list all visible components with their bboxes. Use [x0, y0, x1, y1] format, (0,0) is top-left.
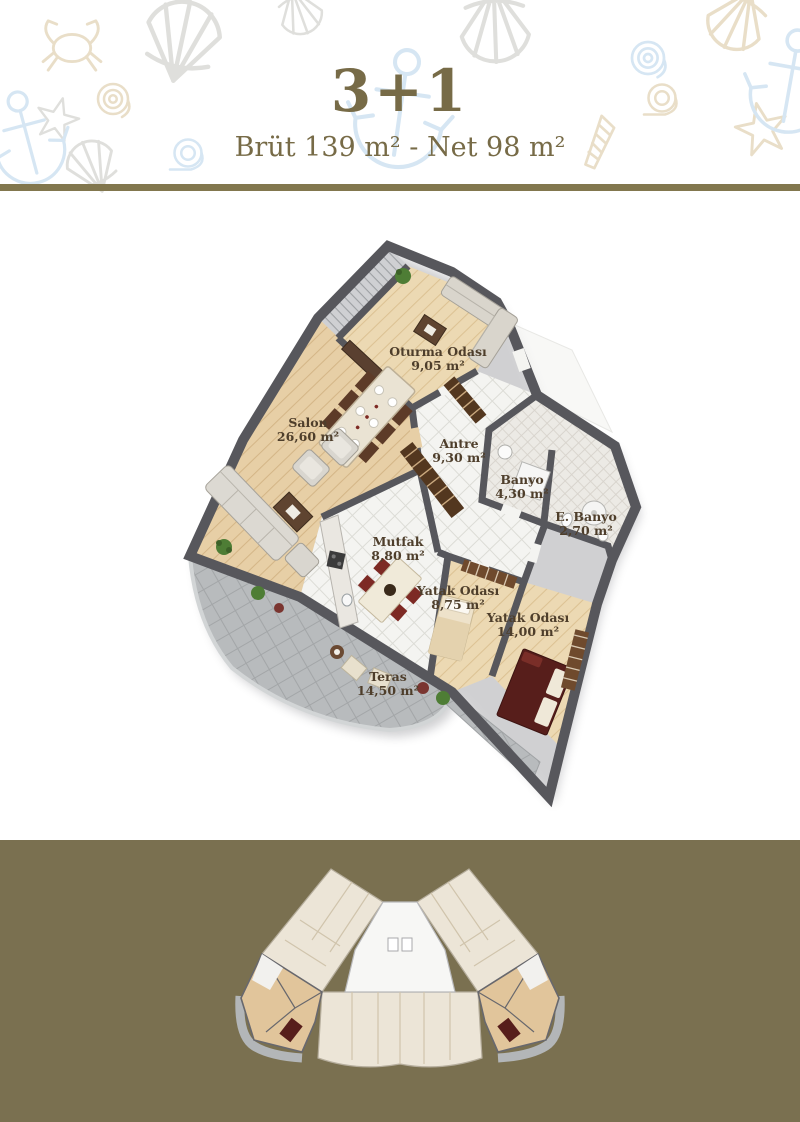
room-area-salon: 26,60 m²	[277, 429, 339, 444]
unit-floor-plan: Oturma Odası 9,05 m² Salon 26,60 m² Antr…	[190, 246, 641, 804]
seashell-decor	[0, 0, 800, 200]
room-label-banyo: Banyo	[500, 472, 543, 487]
room-label-teras: Teras	[369, 669, 407, 684]
room-label-yatak2: Yatak Odası	[486, 610, 570, 625]
brochure-page: Oturma Odası 9,05 m² Salon 26,60 m² Antr…	[0, 0, 800, 1122]
room-label-ebanyo: E. Banyo	[555, 509, 617, 524]
sink	[342, 594, 352, 606]
room-area-yatak1: 8,75 m²	[431, 597, 485, 612]
header-divider-bar	[0, 184, 800, 191]
plant	[251, 586, 265, 600]
plant	[436, 691, 450, 705]
room-area-oturma: 9,05 m²	[411, 358, 465, 373]
room-area-antre: 9,30 m²	[432, 450, 486, 465]
room-area-banyo: 4,30 m²	[495, 486, 549, 501]
room-area-ebanyo: 2,70 m²	[559, 523, 613, 538]
flower-pot	[274, 603, 284, 613]
room-label-antre: Antre	[438, 436, 478, 451]
room-area-mutfak: 8,80 m²	[371, 548, 425, 563]
washbasin	[498, 445, 512, 459]
room-area-teras: 14,50 m²	[357, 683, 419, 698]
room-label-salon: Salon	[288, 415, 327, 430]
room-label-mutfak: Mutfak	[373, 534, 424, 549]
page-art: Oturma Odası 9,05 m² Salon 26,60 m² Antr…	[0, 0, 800, 1122]
room-label-yatak1: Yatak Odası	[416, 583, 500, 598]
room-area-yatak2: 14,00 m²	[497, 624, 559, 639]
room-label-oturma: Oturma Odası	[389, 344, 487, 359]
stove	[327, 551, 346, 570]
